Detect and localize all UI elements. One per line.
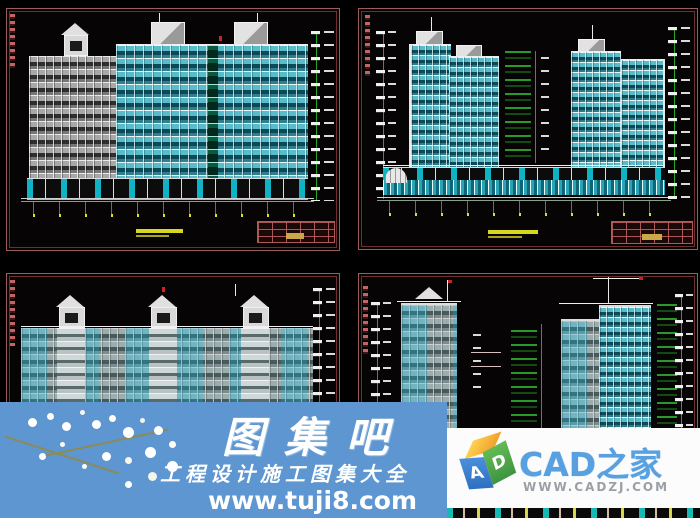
sheet1-red-flag (219, 36, 222, 41)
sheet1-roof-pavilion-body (64, 35, 88, 56)
cad-residual-strip (447, 508, 700, 518)
sheet2-towerB-facade (449, 56, 499, 167)
cadzj-site-name: CAD之家 (519, 438, 662, 486)
sheet1-grid-bubbles (33, 214, 305, 217)
sheet2-vertical-label-strip (365, 15, 370, 77)
sheet3-pavilion2-roof (148, 295, 176, 307)
sheet2-grid-bubbles (389, 213, 661, 216)
sheet2-mid-grid-line (535, 51, 536, 163)
sheet1-antenna-right (257, 13, 258, 23)
sheet3-pavilion1-roof (56, 295, 84, 307)
sheet4-mid-annotation-texts (473, 334, 481, 394)
sheet3-parapet-line (21, 326, 313, 327)
sheet1-ground-line (21, 198, 314, 199)
tuji8-subtitle: 工程设计施工图集大全 (160, 458, 410, 487)
sheet1-roof-pavilion-roof (61, 23, 89, 35)
cadzj-watermark-banner: A D CAD之家 WWW.CADZJ.COM (447, 428, 700, 508)
cadzj-url: WWW.CADZJ.COM (523, 480, 669, 494)
sheet1-ground-floor-shops (27, 178, 308, 200)
sheet4-left-tower-mast (447, 280, 448, 302)
sheet2-right-level-texts (681, 27, 690, 199)
sheet3-pavilion2-flag (162, 287, 165, 292)
sheet1-antenna-left (159, 13, 160, 23)
sheet2-drawing-title-text (488, 230, 538, 234)
sheet4-vertical-label-strip (363, 286, 368, 354)
sheet3-pavilion3-body (243, 307, 269, 328)
sheet1-level-texts (324, 31, 334, 201)
sheet2-title-block-stamp (642, 234, 662, 240)
sheet1-level-markers (311, 31, 320, 201)
sheet4-crane-flag (639, 276, 643, 280)
sheet2-towerA-facade (409, 44, 451, 167)
sheet2-towerD-facade (621, 59, 665, 167)
tuji8-title: 图集吧 (222, 404, 408, 465)
sheet4-crane-mast (608, 276, 609, 304)
sheet2-mid-tree-marks (505, 51, 531, 163)
sheet1-machine-room-left (151, 22, 185, 45)
sheet1-drawing-title-underline (136, 235, 169, 237)
screenshot-root: 图集吧 工程设计施工图集大全 www.tuji8.com A D CAD之家 W… (0, 0, 700, 518)
sheet1-vertical-label-strip (10, 14, 15, 69)
sheet2-podium-storefront-glazing (383, 180, 665, 195)
sheet2-ground-line (377, 197, 671, 198)
plum-blossom-art (28, 418, 37, 427)
sheet2-drawing-title-underline (488, 236, 522, 238)
sheet2-title-block (611, 221, 693, 244)
cadzj-cube-logo: A D (453, 432, 518, 503)
tuji8-url: www.tuji8.com (208, 486, 417, 515)
blossom-branch-2 (41, 429, 169, 458)
sheet1-machine-room-right (234, 22, 268, 45)
sheet1-title-block-stamp (286, 233, 304, 239)
sheet3-pavilion2-body (151, 307, 177, 328)
sheet4-crane-boom (593, 278, 643, 279)
sheet3-pavilion1-body (59, 307, 85, 328)
cad-sheet-top-left (6, 8, 340, 251)
sheet4-left-tower-cap (397, 301, 461, 302)
sheet2-mid-level-texts (541, 57, 549, 161)
tuji8-watermark-banner: 图集吧 工程设计施工图集大全 www.tuji8.com (0, 402, 447, 518)
blossom-branch (5, 436, 120, 475)
sheet4-mid-leader1 (471, 352, 501, 353)
sheet2-towerA-antenna (431, 17, 432, 31)
sheet1-title-block (257, 221, 335, 243)
sheet1-gray-wing-facade (29, 56, 116, 198)
sheet3-vertical-label-strip (10, 280, 15, 346)
sheet2-towerC-facade (571, 51, 621, 167)
sheet4-left-tower-pavilion-roof (415, 287, 443, 299)
sheet3-pavilion3-roof (240, 295, 268, 307)
sheet1-stair-core-strip (208, 45, 218, 197)
sheet4-mid-leader2 (471, 366, 501, 367)
sheet3-pavilion3-antenna (235, 284, 236, 296)
sheet2-podium-roof-line (383, 165, 665, 166)
sheet4-left-tower-mast-flag (448, 280, 452, 283)
sheet4-right-tower-cap (559, 303, 653, 304)
sheet2-right-level-markers (668, 27, 677, 199)
sheet2-towerC-antenna (592, 25, 593, 39)
sheet1-drawing-title-text (136, 229, 183, 233)
cad-sheet-top-right (358, 8, 698, 250)
